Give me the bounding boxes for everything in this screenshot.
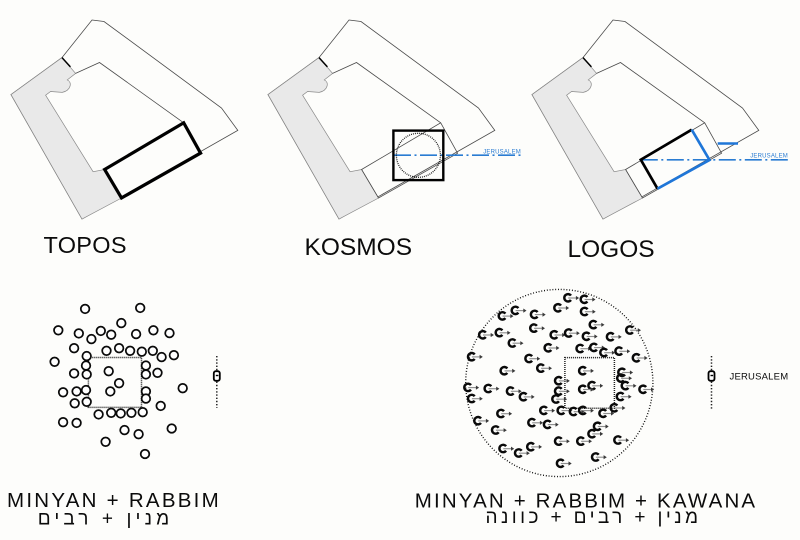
svg-text:JERUSALEM: JERUSALEM [730,372,789,383]
svg-text:TOPOS: TOPOS [44,232,127,258]
svg-text:JERUSALEM: JERUSALEM [750,154,788,160]
svg-text:LOGOS: LOGOS [568,236,655,263]
svg-text:KOSMOS: KOSMOS [305,234,413,261]
svg-text:מנין + רבים: מנין + רבים [38,509,173,530]
svg-text:JERUSALEM: JERUSALEM [483,149,521,155]
svg-text:מנין + רבים + כוונה: מנין + רבים + כוונה [486,507,702,528]
